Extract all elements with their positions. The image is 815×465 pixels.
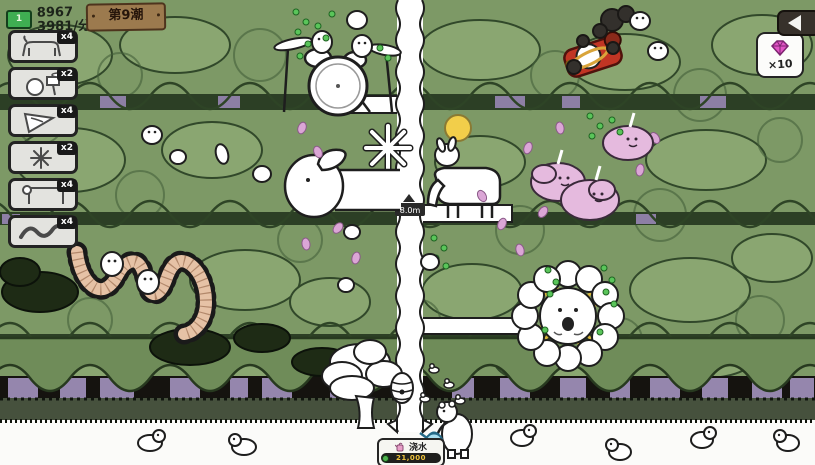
diamond-icon: [769, 39, 791, 57]
unit-card-drill[interactable]: x4: [8, 104, 78, 137]
beehive: [391, 373, 413, 403]
cost-text: 21,000: [396, 454, 426, 462]
unit-count-badge: x4: [57, 179, 77, 192]
reward-count: ×10: [767, 57, 792, 72]
action-label: 浇水: [409, 440, 427, 453]
unit-count-badge: x4: [57, 105, 77, 118]
unit-card-horse[interactable]: x4: [8, 30, 78, 63]
sun-coin[interactable]: [445, 115, 471, 141]
watering-action-panel[interactable]: 浇水 21,000: [377, 438, 445, 465]
unit-count-badge: x4: [57, 31, 77, 44]
unit-card-splat[interactable]: x2: [8, 141, 78, 174]
unit-count-badge: x4: [57, 216, 77, 229]
diamond-reward-card[interactable]: ×10: [756, 32, 804, 78]
unit-count-badge: x2: [57, 68, 77, 81]
cost-bar: 21,000: [381, 453, 441, 463]
forest-scene: 8.0m: [0, 0, 815, 465]
unit-count-badge: x2: [57, 142, 77, 155]
unit-card-worm[interactable]: x4: [8, 215, 78, 248]
wave-sign: 第9潮: [86, 2, 166, 31]
back-button[interactable]: [777, 10, 815, 36]
watering-can-icon: [395, 442, 406, 452]
money-bill-icon: 1: [6, 10, 32, 29]
unit-card-goose[interactable]: x4: [8, 178, 78, 211]
back-arrow-icon: [788, 15, 801, 31]
game-screen: 8.0m: [0, 0, 815, 465]
unit-card-drum-kit[interactable]: x2: [8, 67, 78, 100]
svg-text:8.0m: 8.0m: [400, 206, 421, 215]
coin-icon: [382, 455, 389, 462]
unit-card-sidebar: x4 x2 x4 x2 x4: [8, 30, 78, 248]
splat-star-creature[interactable]: [366, 126, 410, 170]
